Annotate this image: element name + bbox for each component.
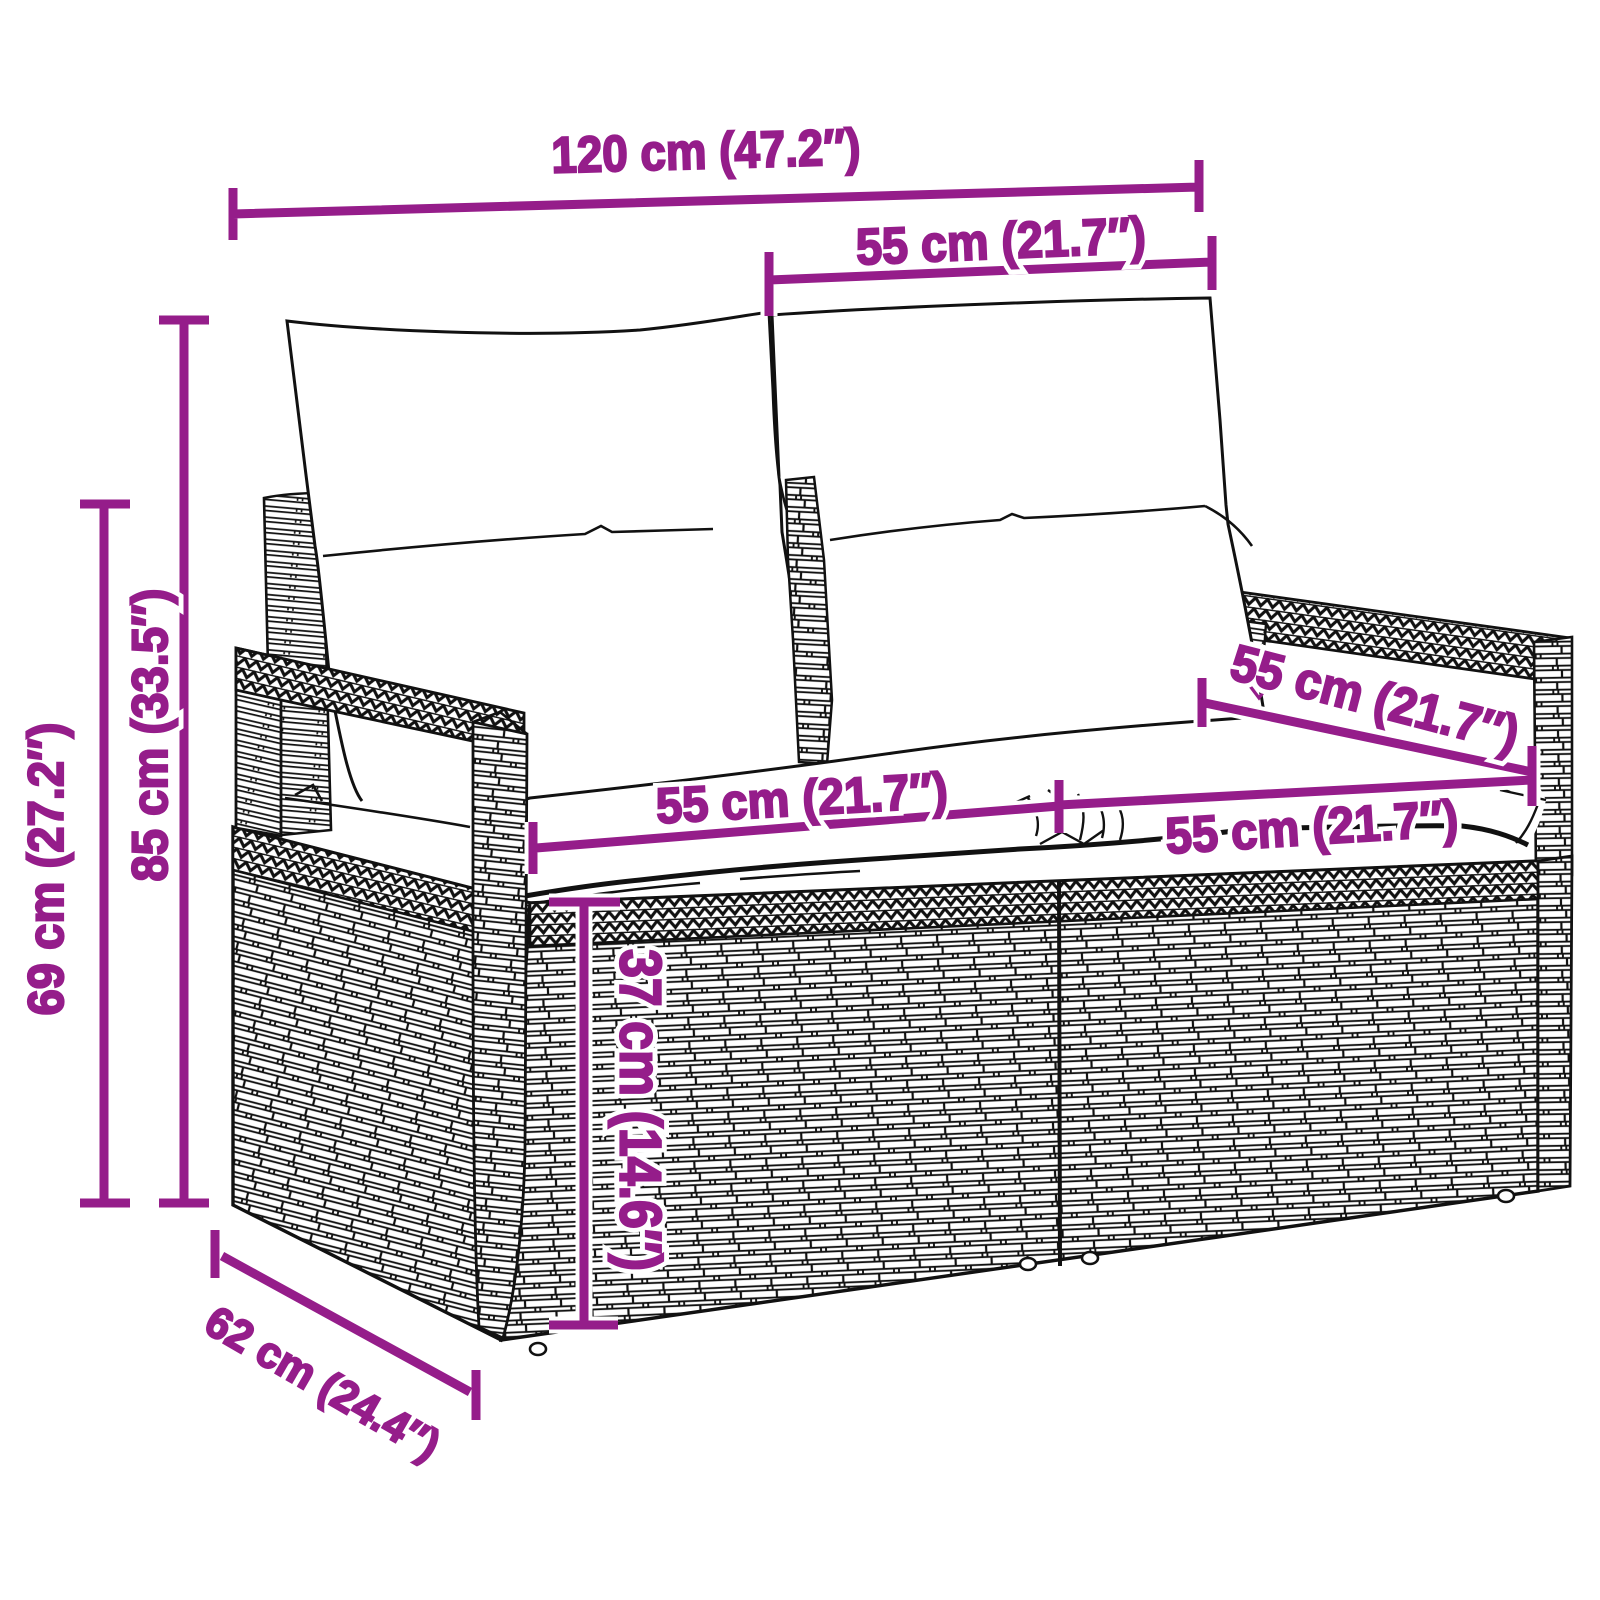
svg-text:85 cm (33.5″): 85 cm (33.5″) (122, 589, 178, 882)
svg-text:69 cm (27.2″): 69 cm (27.2″) (18, 723, 74, 1016)
svg-text:120 cm (47.2″): 120 cm (47.2″) (551, 118, 861, 184)
svg-text:55 cm (21.7″): 55 cm (21.7″) (855, 206, 1147, 275)
svg-text:37 cm (14.6″): 37 cm (14.6″) (608, 949, 673, 1271)
